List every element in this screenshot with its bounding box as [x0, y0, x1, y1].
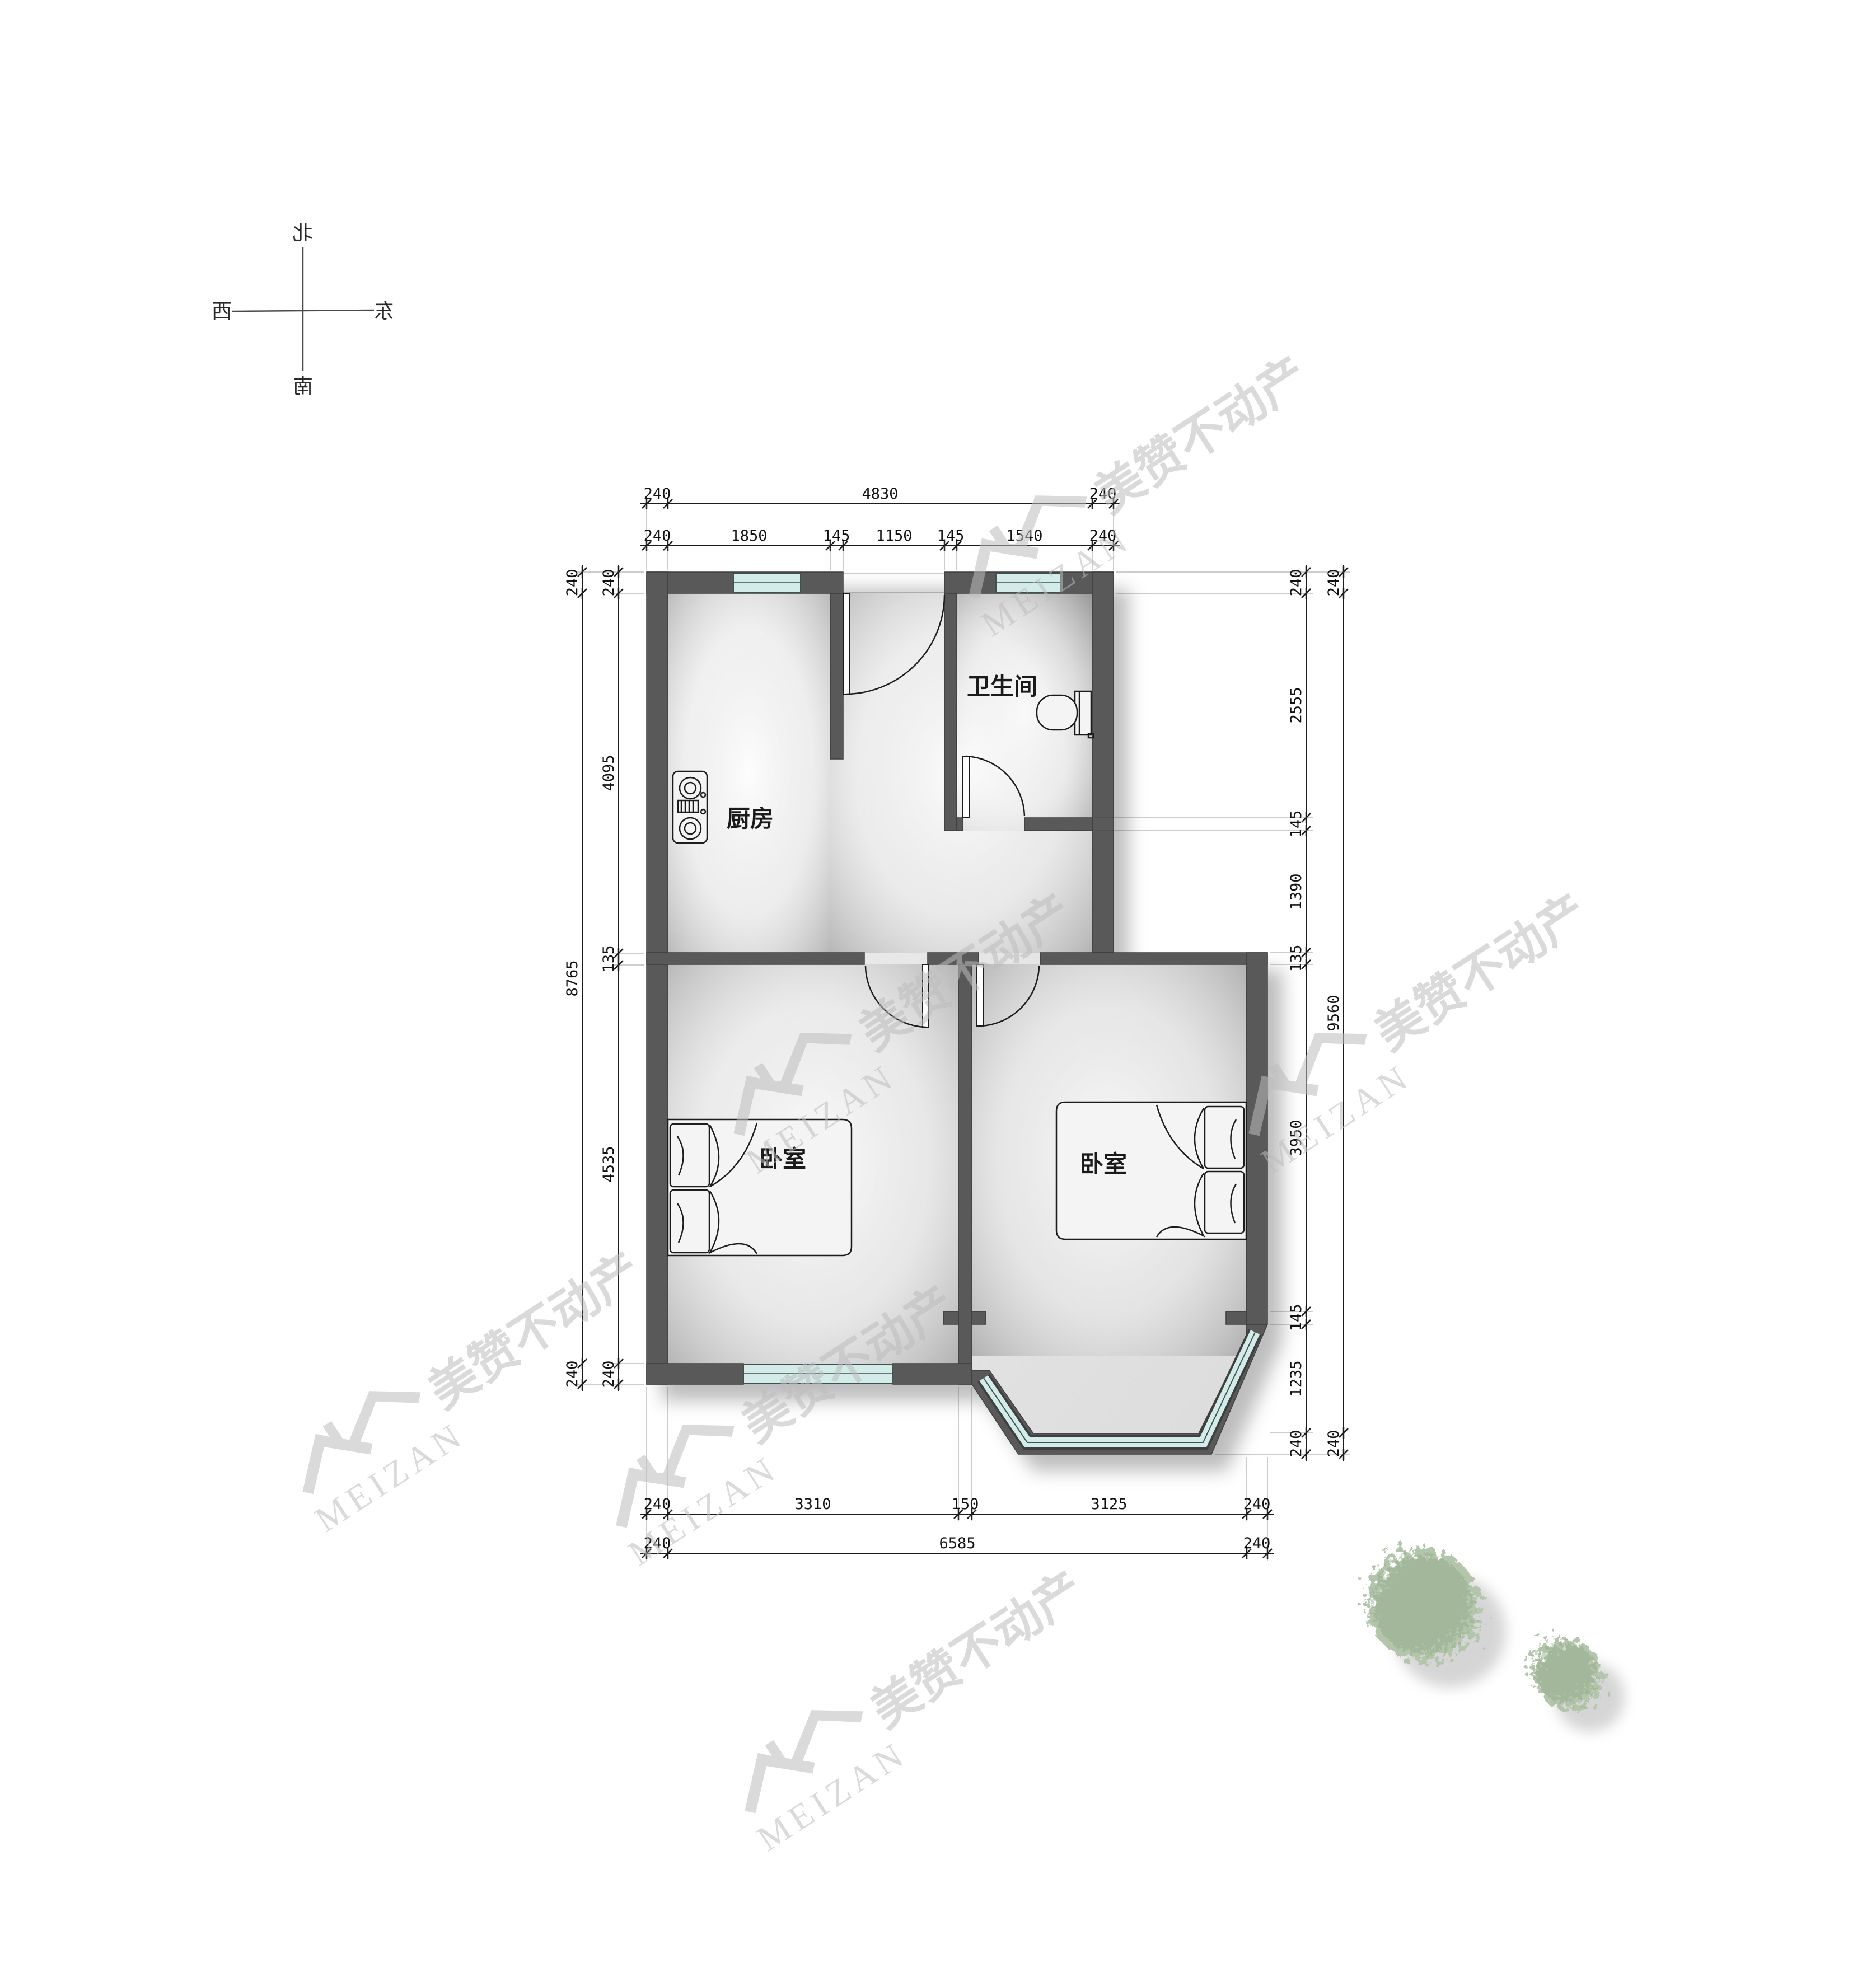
dim-label: 8765	[564, 960, 581, 996]
wall-bathroom-bottom-a	[957, 818, 963, 831]
dim-label: 240	[644, 527, 671, 545]
tree-icon	[1368, 1549, 1506, 1688]
wall-stub-mid	[972, 1311, 986, 1324]
dim-chain-right-inner: 240 2555 145 1390 135 3950 145 1235 240	[1288, 565, 1311, 1461]
watermark: MEIZAN 美赞不动产	[715, 1551, 1112, 1859]
dim-label: 240	[1288, 1430, 1305, 1458]
dim-label: 145	[823, 527, 850, 545]
dim-label: 145	[937, 527, 965, 545]
dim-label: 240	[600, 569, 617, 597]
dim-label: 240	[1288, 569, 1305, 597]
wall-bottom-a	[647, 1364, 743, 1384]
wall-right-lower	[1246, 953, 1267, 1324]
dim-label: 3310	[794, 1496, 831, 1513]
dim-label: 6585	[939, 1535, 975, 1552]
dim-label: 1390	[1288, 873, 1305, 910]
kitchen-label: 厨房	[727, 805, 774, 832]
watermark-cn: 美赞不动产	[1085, 346, 1317, 524]
dim-label: 135	[1288, 945, 1305, 972]
dim-chain-top-inner: 240 1850 145 1150 145 1540 240	[640, 527, 1120, 551]
wall-bathroom-left	[944, 593, 957, 831]
wall-bathroom-bottom-b	[1024, 818, 1092, 831]
bedroom-right-label: 卧室	[1080, 1150, 1127, 1178]
dim-label: 9560	[1325, 995, 1342, 1031]
stove-icon	[673, 771, 707, 843]
dim-label: 1235	[1288, 1360, 1305, 1397]
compass-north-label: 北	[293, 222, 313, 245]
wall-bottom-b	[893, 1364, 972, 1384]
compass-west-label: 西	[212, 300, 232, 323]
wall-kitchen-partition	[830, 593, 843, 759]
dim-chain-right-outer: 240 9560 240	[1325, 565, 1348, 1461]
dim-label: 240	[1243, 1535, 1271, 1552]
dim-label: 3125	[1091, 1496, 1127, 1513]
dim-label: 4830	[862, 485, 898, 503]
dim-chain-bottom-outer: 240 6585 240	[640, 1535, 1274, 1559]
wall-middle-a	[647, 953, 864, 964]
dim-label: 2555	[1288, 687, 1305, 723]
dim-label: 240	[564, 1361, 581, 1388]
wall-stub-right	[1226, 1311, 1246, 1324]
compass-cross-icon	[232, 247, 374, 371]
dim-label: 145	[1288, 811, 1305, 838]
compass-east-label: 东	[374, 300, 394, 323]
dim-label: 135	[600, 945, 617, 973]
wall-left	[647, 572, 668, 1384]
dim-label: 4095	[600, 755, 617, 791]
floorplan-canvas: 厨房 卫生间 卧室 卧室 北 南 西 东 240 4830 240 240 18…	[0, 0, 1876, 1963]
dim-label: 240	[644, 485, 671, 503]
dim-label: 1850	[731, 527, 767, 545]
svg-text:美赞不动产: 美赞不动产	[861, 1561, 1093, 1739]
tree-icon	[1532, 1639, 1625, 1732]
dim-label: 150	[952, 1496, 979, 1513]
dim-label: 240	[1325, 569, 1342, 597]
dim-label: 240	[600, 1361, 617, 1388]
kitchen-window	[733, 573, 801, 592]
wall-right-upper	[1092, 572, 1114, 953]
dim-label: 1150	[876, 527, 912, 545]
floorplan-drawing: 厨房 卫生间 卧室 卧室 北 南 西 东 240 4830 240 240 18…	[0, 0, 1876, 1963]
bathroom-label: 卫生间	[967, 673, 1037, 700]
dim-label: 145	[1288, 1304, 1305, 1332]
watermark: MEIZAN 美赞不动产	[939, 336, 1336, 644]
dim-label: 240	[564, 569, 581, 597]
svg-text:美赞不动产: 美赞不动产	[419, 1241, 651, 1419]
svg-text:美赞不动产: 美赞不动产	[1365, 883, 1597, 1061]
dim-label: 240	[1243, 1496, 1271, 1513]
compass-south-label: 南	[293, 375, 313, 398]
wall-middle-c	[1040, 953, 1267, 964]
dim-label: 4535	[600, 1146, 617, 1182]
dim-label: 240	[1325, 1430, 1342, 1458]
